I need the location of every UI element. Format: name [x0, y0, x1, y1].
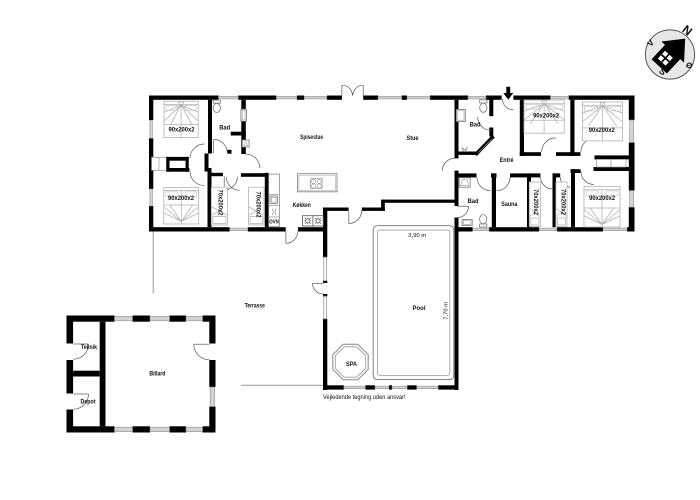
svg-text:90x200x2: 90x200x2 — [589, 127, 616, 134]
svg-text:Entré: Entré — [500, 157, 514, 164]
svg-text:70x200x2: 70x200x2 — [217, 190, 223, 217]
svg-text:90x200x2: 90x200x2 — [589, 195, 616, 202]
svg-text:7,70 m: 7,70 m — [443, 302, 449, 320]
svg-text:90x200x2: 90x200x2 — [533, 112, 560, 119]
svg-text:3,90 m: 3,90 m — [408, 233, 426, 239]
svg-text:Bad: Bad — [470, 121, 481, 128]
svg-text:90x200x2: 90x200x2 — [169, 126, 196, 133]
svg-text:70x200x2: 70x200x2 — [532, 189, 538, 216]
svg-text:Teknik: Teknik — [81, 344, 97, 351]
svg-text:90x200x2: 90x200x2 — [168, 195, 195, 202]
svg-text:Stue: Stue — [407, 135, 419, 142]
svg-text:Sauna: Sauna — [501, 201, 517, 208]
svg-text:Køkken: Køkken — [293, 202, 311, 209]
svg-text:Terrasse: Terrasse — [245, 302, 265, 309]
svg-text:Bad: Bad — [468, 198, 479, 205]
svg-text:Vejledende tegning uden ansvar: Vejledende tegning uden ansvar! — [323, 394, 406, 401]
svg-text:Bad: Bad — [219, 124, 230, 131]
svg-text:70x200x2: 70x200x2 — [254, 192, 260, 219]
svg-text:Pool: Pool — [413, 305, 426, 312]
svg-text:Spisestue: Spisestue — [300, 134, 323, 141]
svg-text:Depot: Depot — [81, 399, 97, 406]
svg-text:SPA: SPA — [346, 361, 357, 368]
svg-text:Billard: Billard — [149, 371, 165, 378]
svg-text:70x200x2: 70x200x2 — [560, 189, 566, 216]
svg-text:OVN: OVN — [269, 219, 279, 225]
